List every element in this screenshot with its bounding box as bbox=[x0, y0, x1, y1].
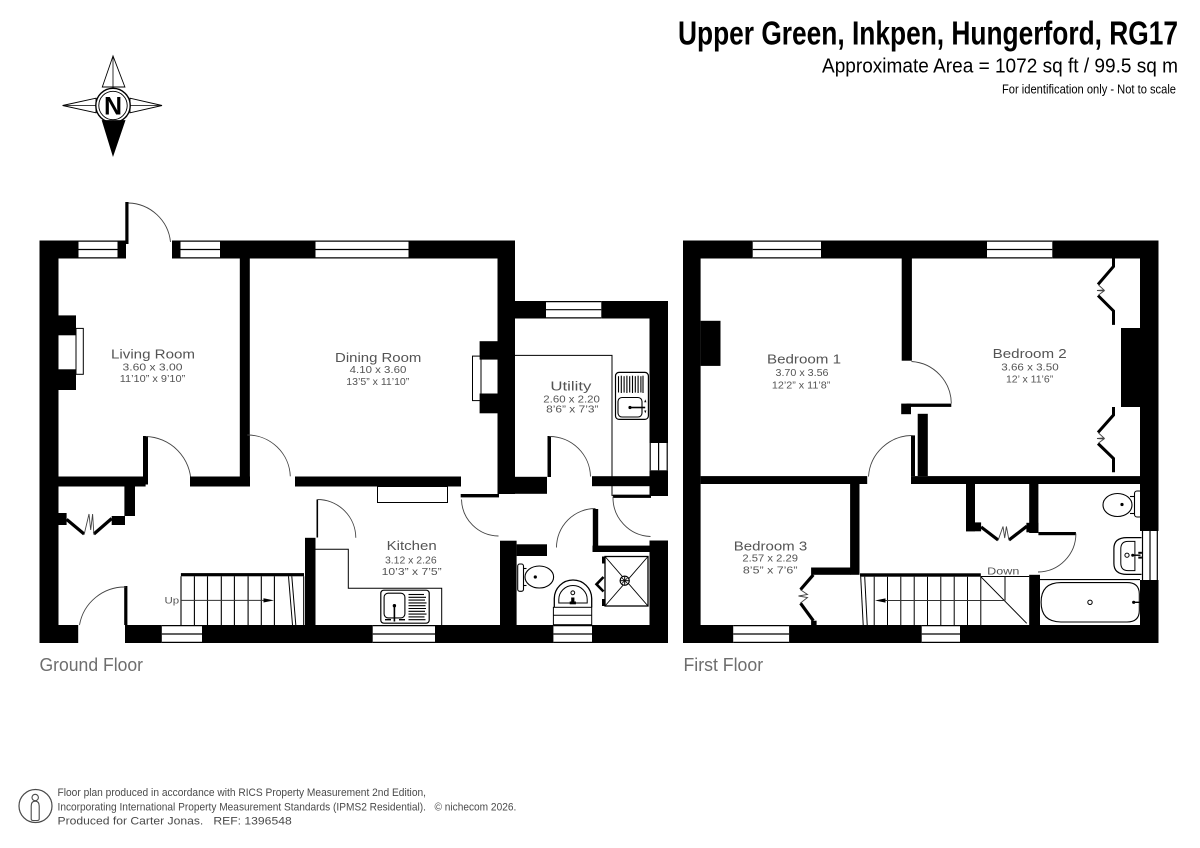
svg-text:Bedroom 3: Bedroom 3 bbox=[734, 540, 807, 554]
svg-text:3.60 x 3.00: 3.60 x 3.00 bbox=[123, 361, 183, 373]
svg-text:First Floor: First Floor bbox=[684, 654, 764, 675]
svg-text:10’3” x 7’5”: 10’3” x 7’5” bbox=[382, 566, 443, 578]
svg-text:8’5” x 7’6”: 8’5” x 7’6” bbox=[743, 566, 798, 577]
svg-text:3.66 x 3.50: 3.66 x 3.50 bbox=[1001, 361, 1059, 373]
svg-text:Up: Up bbox=[165, 595, 180, 606]
svg-text:Upper Green, Inkpen, Hungerfor: Upper Green, Inkpen, Hungerford, RG17 bbox=[678, 15, 1178, 52]
svg-text:Bedroom 2: Bedroom 2 bbox=[993, 346, 1067, 361]
svg-text:4.10 x 3.60: 4.10 x 3.60 bbox=[350, 364, 407, 376]
svg-text:Kitchen: Kitchen bbox=[387, 538, 437, 553]
svg-text:N: N bbox=[104, 93, 122, 121]
svg-text:Bedroom 1: Bedroom 1 bbox=[767, 352, 841, 367]
svg-text:Produced for Carter Jonas. R: Produced for Carter Jonas. REF: 1396548 bbox=[58, 816, 292, 828]
svg-text:11’10” x 9’10”: 11’10” x 9’10” bbox=[120, 373, 186, 385]
svg-text:Utility: Utility bbox=[550, 378, 591, 393]
svg-text:Ground Floor: Ground Floor bbox=[40, 654, 144, 675]
svg-text:13’5” x 11’10”: 13’5” x 11’10” bbox=[346, 376, 410, 388]
svg-text:3.70 x 3.56: 3.70 x 3.56 bbox=[776, 367, 829, 379]
svg-text:2.57 x 2.29: 2.57 x 2.29 bbox=[742, 554, 798, 565]
svg-text:3.12 x 2.26: 3.12 x 2.26 bbox=[385, 554, 437, 566]
svg-text:Approximate Area = 1072 sq ft: Approximate Area = 1072 sq ft / 99.5 sq … bbox=[822, 56, 1178, 78]
svg-text:Incorporating International Pr: Incorporating International Property Mea… bbox=[58, 802, 517, 814]
svg-text:Floor plan produced in accorda: Floor plan produced in accordance with R… bbox=[58, 787, 427, 799]
svg-text:12’ x 11’6”: 12’ x 11’6” bbox=[1006, 374, 1054, 386]
svg-text:For identification only - Not: For identification only - Not to scale bbox=[1002, 82, 1176, 97]
svg-text:Down: Down bbox=[987, 565, 1019, 577]
svg-text:8’6” x 7’3”: 8’6” x 7’3” bbox=[546, 404, 599, 416]
svg-text:Living Room: Living Room bbox=[111, 346, 195, 361]
svg-text:12’2” x 11’8”: 12’2” x 11’8” bbox=[772, 379, 831, 391]
